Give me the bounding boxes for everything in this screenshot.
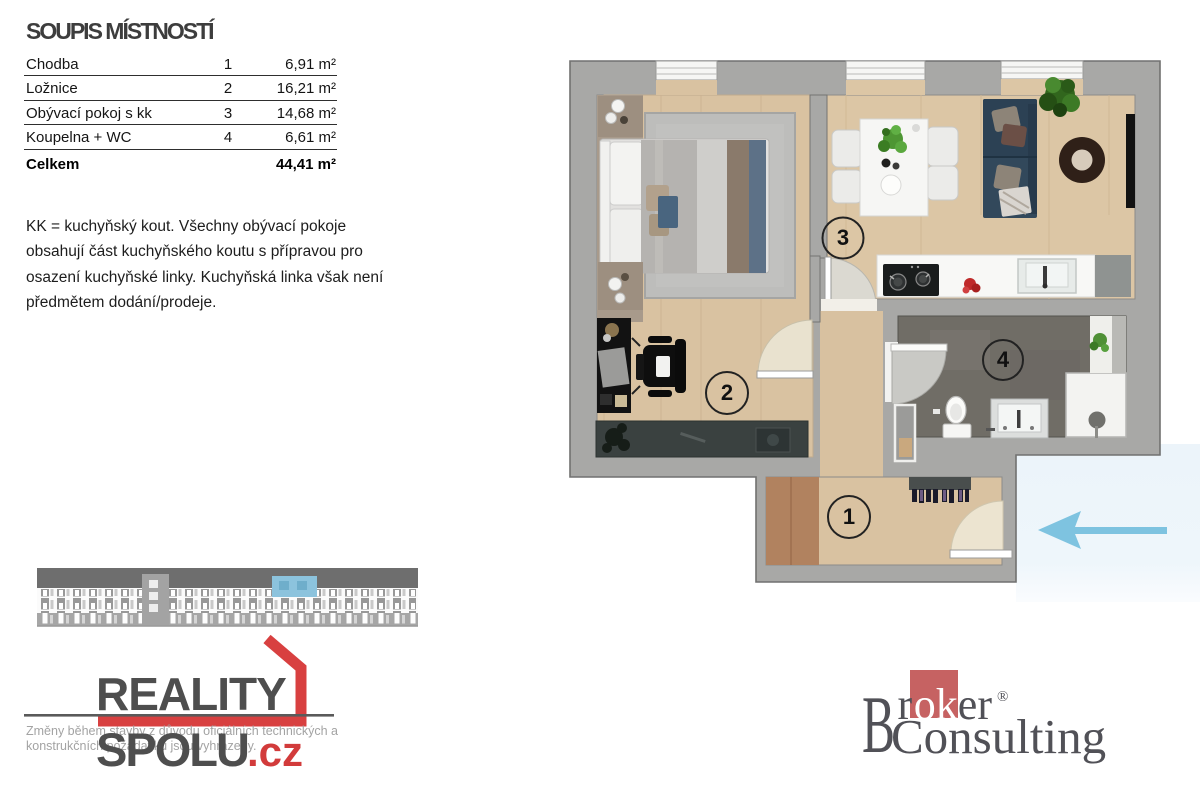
svg-text:1: 1 — [843, 504, 855, 529]
svg-text:.cz: .cz — [247, 728, 303, 775]
svg-text:Consulting: Consulting — [891, 709, 1106, 764]
svg-text:REALITY: REALITY — [96, 668, 286, 720]
svg-text:®: ® — [997, 689, 1008, 705]
svg-text:SPOLU: SPOLU — [96, 723, 248, 776]
svg-text:4: 4 — [997, 347, 1010, 372]
svg-text:2: 2 — [721, 380, 733, 405]
svg-text:3: 3 — [837, 225, 849, 250]
